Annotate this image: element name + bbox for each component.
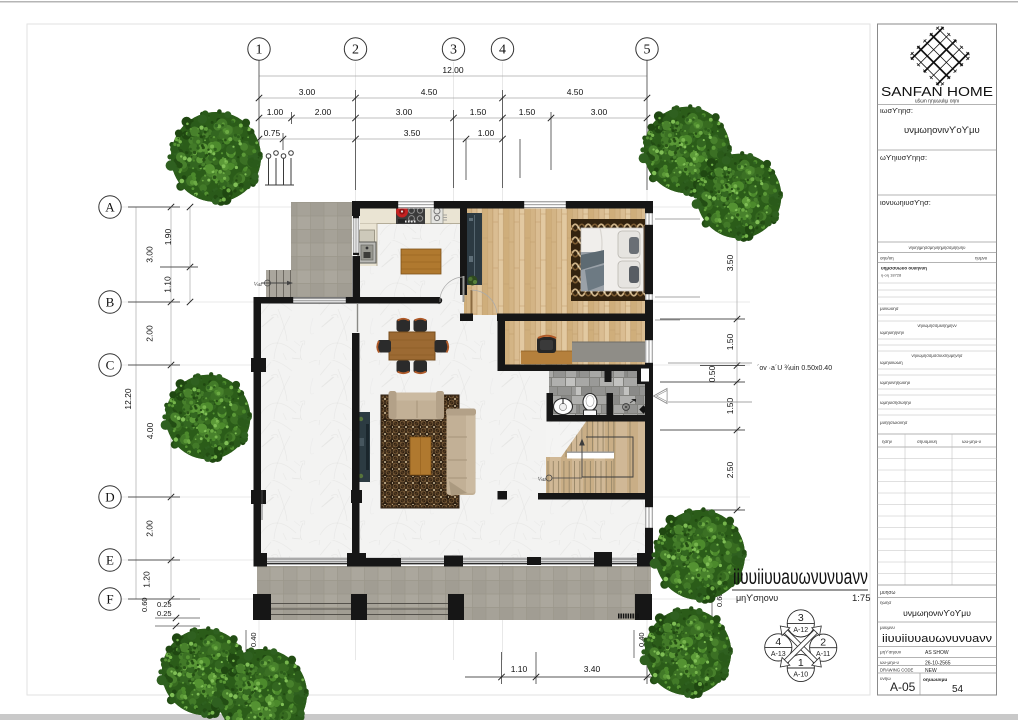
svg-text:μηϒσηουν: μηϒσηουν (880, 650, 902, 655)
svg-text:0.75: 0.75 (264, 128, 281, 138)
svg-text:οηυ/υη: οηυ/υη (880, 256, 894, 261)
svg-text:E: E (106, 553, 114, 568)
svg-text:ωυ-μηυ-υ: ωυ-μηυ-υ (880, 660, 900, 665)
svg-text:3: 3 (798, 612, 804, 624)
svg-text:μυνωυησ: μυνωυησ (880, 306, 899, 311)
svg-text:1.90: 1.90 (163, 228, 173, 245)
svg-text:2.00: 2.00 (145, 520, 155, 537)
svg-text:ušωn ηηuωulιμ οηnι: ušωn ηηuωulιμ οηnι (915, 99, 959, 105)
svg-text:σηυομνυη: σηυομνυη (917, 439, 938, 444)
svg-text:ιονυωηιυσϒησ:: ιονυωηιυσϒησ: (880, 198, 931, 207)
svg-text:0.60: 0.60 (140, 597, 149, 612)
svg-text:ηυμνυ: ηυμνυ (975, 256, 988, 261)
svg-text:1:75: 1:75 (852, 593, 871, 604)
svg-text:μυυμνυ: μυυμνυ (880, 625, 895, 630)
svg-text:μυησω: μυησω (880, 590, 895, 596)
svg-text:¼u: ¼u (538, 477, 546, 483)
svg-text:A: A (105, 200, 115, 215)
svg-text:1.50: 1.50 (725, 397, 735, 414)
svg-text:ωu-μηu-υ: ωu-μηu-υ (962, 439, 982, 444)
svg-text:ωμηιυσησωηηυ: ωμηιυσησωηηυ (880, 400, 912, 405)
svg-text:3.50: 3.50 (725, 254, 735, 271)
svg-text:4: 4 (775, 636, 781, 648)
svg-text:η-οη 18728: η-οη 18728 (881, 273, 902, 278)
svg-text:υνμωηονινϒοϒμυ: υνμωηονινϒοϒμυ (904, 125, 980, 136)
svg-text:3.00: 3.00 (396, 107, 413, 117)
svg-text:3.40: 3.40 (584, 664, 601, 674)
svg-text:1.50: 1.50 (725, 333, 735, 350)
svg-text:3.50: 3.50 (404, 128, 421, 138)
svg-text:1.10: 1.10 (511, 664, 528, 674)
svg-text:4.00: 4.00 (145, 422, 155, 439)
svg-text:4.50: 4.50 (567, 87, 584, 97)
svg-text:2: 2 (820, 637, 826, 649)
svg-text:3.00: 3.00 (299, 87, 316, 97)
svg-text:A-10: A-10 (793, 672, 808, 679)
svg-text:DRAWING CODE: DRAWING CODE (880, 668, 914, 673)
svg-text:12.20: 12.20 (123, 388, 133, 410)
svg-text:0.50: 0.50 (707, 365, 717, 382)
svg-text:ιωσϒηησ:: ιωσϒηησ: (880, 106, 913, 115)
svg-text:οηuωuνμu: οηuωuνμu (923, 677, 947, 683)
svg-text:A-12: A-12 (793, 627, 808, 634)
svg-text:3.00: 3.00 (591, 107, 608, 117)
svg-text:4: 4 (499, 43, 506, 58)
svg-text:μυηησωιονησ: μυηησωιονησ (880, 420, 908, 425)
svg-text:A-05: A-05 (890, 680, 916, 694)
svg-text:ωμηιυνηηωυηυ: ωμηιυνηηωυηυ (880, 380, 911, 385)
svg-text:iiυυiiυυaυωνυνυaνν: iiυυiiυυaυωνυνυaνν (882, 633, 993, 645)
svg-text:´ov ·a´U ¾uin 0.50x0.40: ´ov ·a´U ¾uin 0.50x0.40 (757, 365, 832, 372)
svg-text:ωμηιυηηνην: ωμηιυηηνην (880, 330, 905, 335)
svg-text:1.50: 1.50 (519, 107, 536, 117)
svg-text:ηωησ: ηωησ (880, 600, 892, 605)
svg-text:AS SHOW: AS SHOW (925, 650, 949, 656)
svg-text:4.50: 4.50 (421, 87, 438, 97)
svg-text:νηυωμησσμιυηημηνν: νηυωμησσμιυηημηνν (917, 323, 956, 328)
svg-text:3.00: 3.00 (145, 246, 155, 263)
svg-text:μηϒσηονυ: μηϒσηονυ (736, 593, 778, 603)
svg-text:0.25: 0.25 (157, 609, 172, 618)
svg-text:54: 54 (952, 684, 964, 695)
svg-text:2.00: 2.00 (315, 107, 332, 117)
svg-text:1.10: 1.10 (163, 276, 173, 293)
svg-text:D: D (105, 490, 114, 505)
svg-text:2.50: 2.50 (725, 461, 735, 478)
svg-text:1.00: 1.00 (267, 107, 284, 117)
svg-text:ωμηιυιωωη: ωμηιυιωωη (880, 360, 903, 365)
svg-text:5: 5 (644, 43, 651, 58)
svg-text:1.20: 1.20 (142, 571, 152, 588)
svg-text:ησην: ησην (882, 439, 893, 444)
svg-text:ωϒηιυσϒηησ:: ωϒηιυσϒηησ: (880, 153, 927, 162)
svg-text:A-13: A-13 (771, 651, 786, 658)
svg-text:υημσσυωυο ουυηνυη: υημσσυωυο ουυηνυη (881, 266, 927, 271)
svg-text:1: 1 (798, 657, 804, 669)
svg-text:2.00: 2.00 (145, 325, 155, 342)
svg-text:12.00: 12.00 (442, 65, 464, 75)
svg-text:0.25: 0.25 (157, 600, 172, 609)
svg-text:1: 1 (256, 43, 263, 58)
svg-text:1.00: 1.00 (478, 128, 495, 138)
svg-text:νηυηημησσμηυηημησσμηηυηυ: νηυηημησσμηυηημησσμηηυηυ (909, 245, 967, 250)
svg-text:A-11: A-11 (816, 651, 830, 658)
svg-text:SANFAN HOME: SANFAN HOME (881, 84, 993, 99)
svg-text:¼u: ¼u (254, 282, 262, 288)
svg-text:2: 2 (352, 43, 359, 58)
svg-text:νηυωμησσμσσυυσηυμηνησ: νηυωμησσμσσυυσηυμηνησ (911, 353, 962, 358)
svg-text:iiυυiiυυaυωνυνυaνν: iiυυiiυυaυωνυνυaνν (733, 566, 868, 589)
svg-text:3: 3 (450, 43, 457, 58)
svg-text:F: F (106, 592, 113, 607)
svg-text:0.40: 0.40 (249, 632, 258, 647)
svg-text:1.50: 1.50 (470, 107, 487, 117)
svg-text:υνμωηονινϒοϒμυ: υνμωηονινϒοϒμυ (903, 608, 971, 618)
svg-text:C: C (106, 358, 115, 373)
svg-text:B: B (106, 295, 115, 310)
